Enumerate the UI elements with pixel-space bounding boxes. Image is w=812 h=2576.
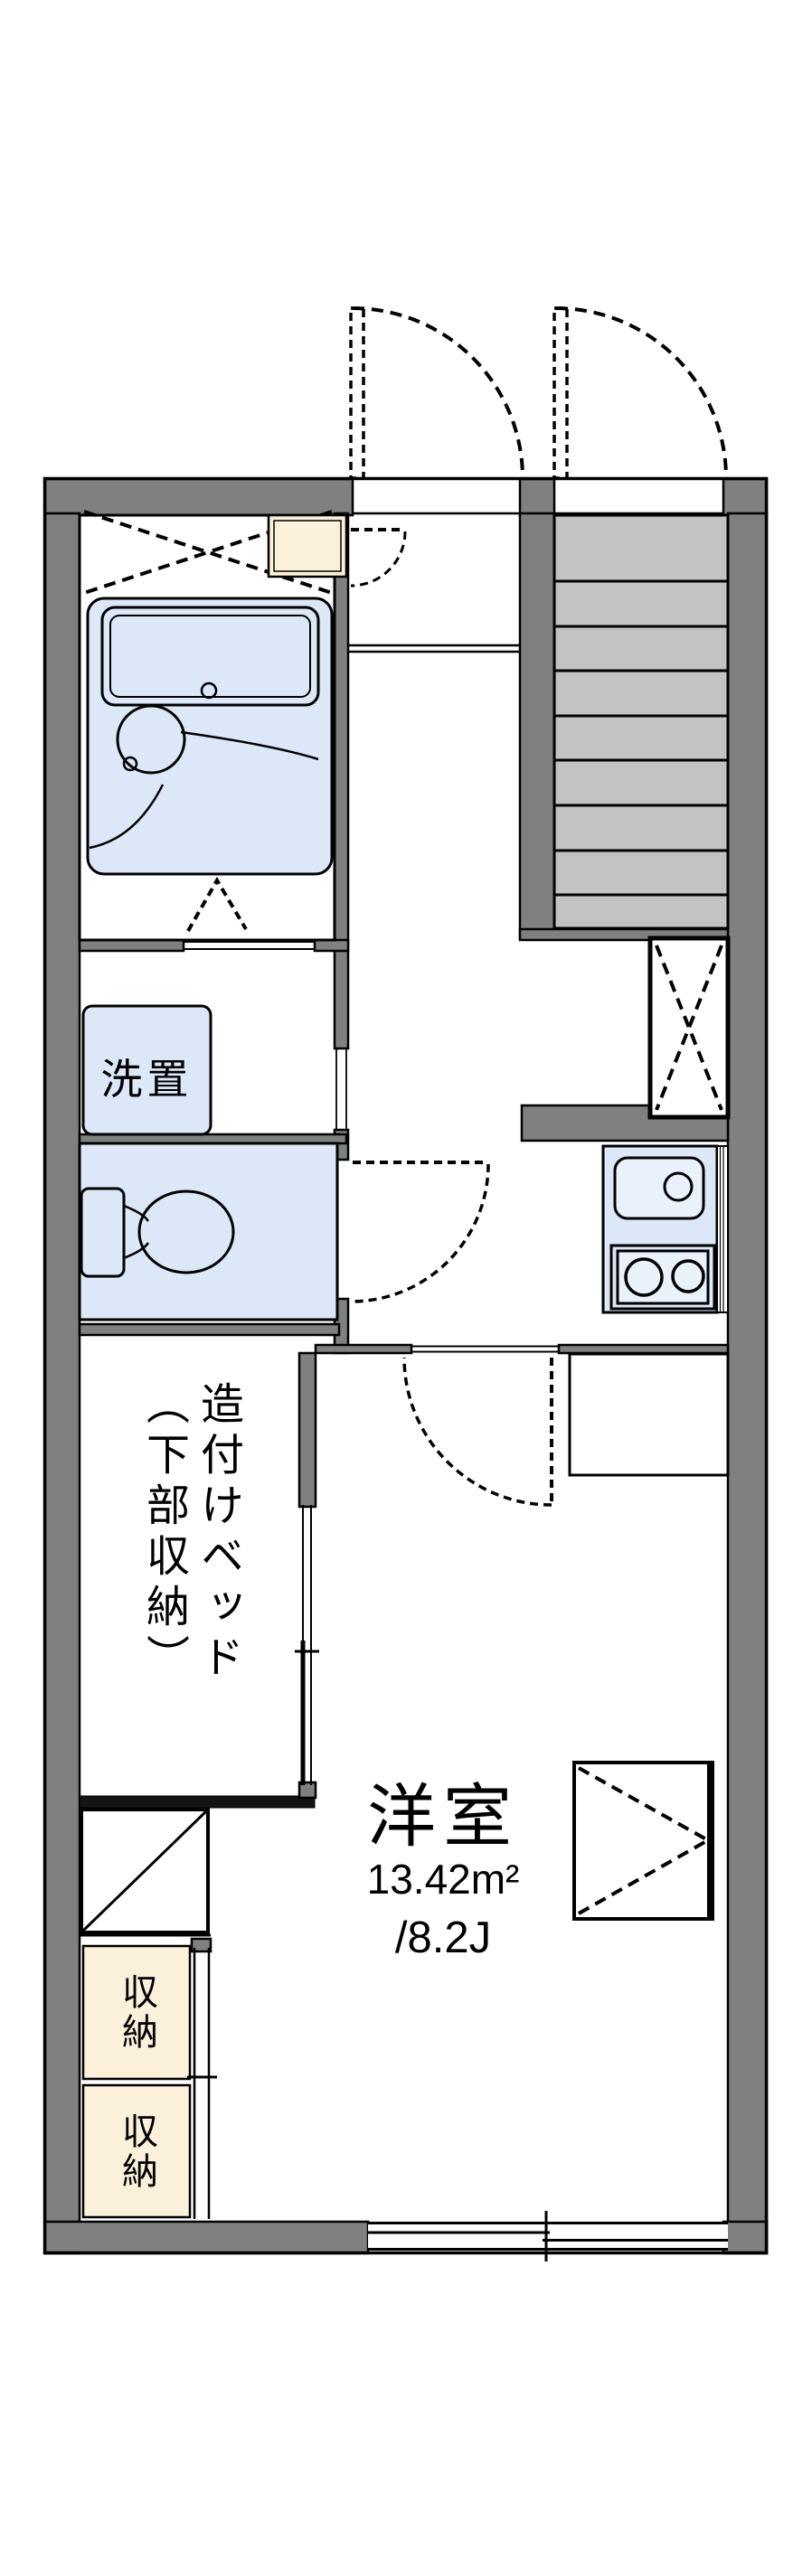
kitchen-sink: [615, 1158, 703, 1218]
entry-door-left: [351, 308, 523, 478]
under-bed-closet: [81, 1810, 208, 1932]
storage-lower-label: 収納: [83, 2088, 190, 2216]
toilet-door-swing: [351, 1164, 488, 1302]
room-door: [404, 1358, 552, 1505]
bath-folding-door: [188, 880, 246, 931]
staircase: [554, 515, 728, 928]
water-heater: [269, 515, 346, 577]
room-name-label: 洋室: [335, 1761, 552, 1860]
bathroom: [80, 512, 346, 940]
built-in-bed-label: 造付けベッド （下部収納）: [136, 1381, 244, 1716]
washer-label: 洗置: [83, 1047, 211, 1106]
bed-partition: [295, 1353, 319, 1798]
toilet-bowl: [139, 1191, 233, 1273]
wash-basin: [118, 706, 184, 773]
entrance-hall: [348, 530, 520, 652]
side-window: [574, 1763, 713, 1919]
room-area-sqm-label: 13.42m²: [316, 1855, 570, 1904]
toilet-tank: [81, 1189, 124, 1276]
entry-door-right: [554, 308, 726, 478]
heater-door-swing: [351, 531, 405, 586]
pipe-shaft: [650, 938, 728, 1117]
kitchen-counter: [570, 1354, 728, 1475]
room-area-tatami-label: /8.2J: [316, 1913, 570, 1963]
kitchen: [570, 1146, 728, 1475]
toilet-room: [80, 1143, 488, 1320]
floor-plan: 洗置 造付けベッド （下部収納） 洋室 13.42m² /8.2J 収納 収納: [0, 0, 812, 2576]
storage-upper-label: 収納: [83, 1949, 190, 2077]
bathtub: [102, 607, 318, 705]
